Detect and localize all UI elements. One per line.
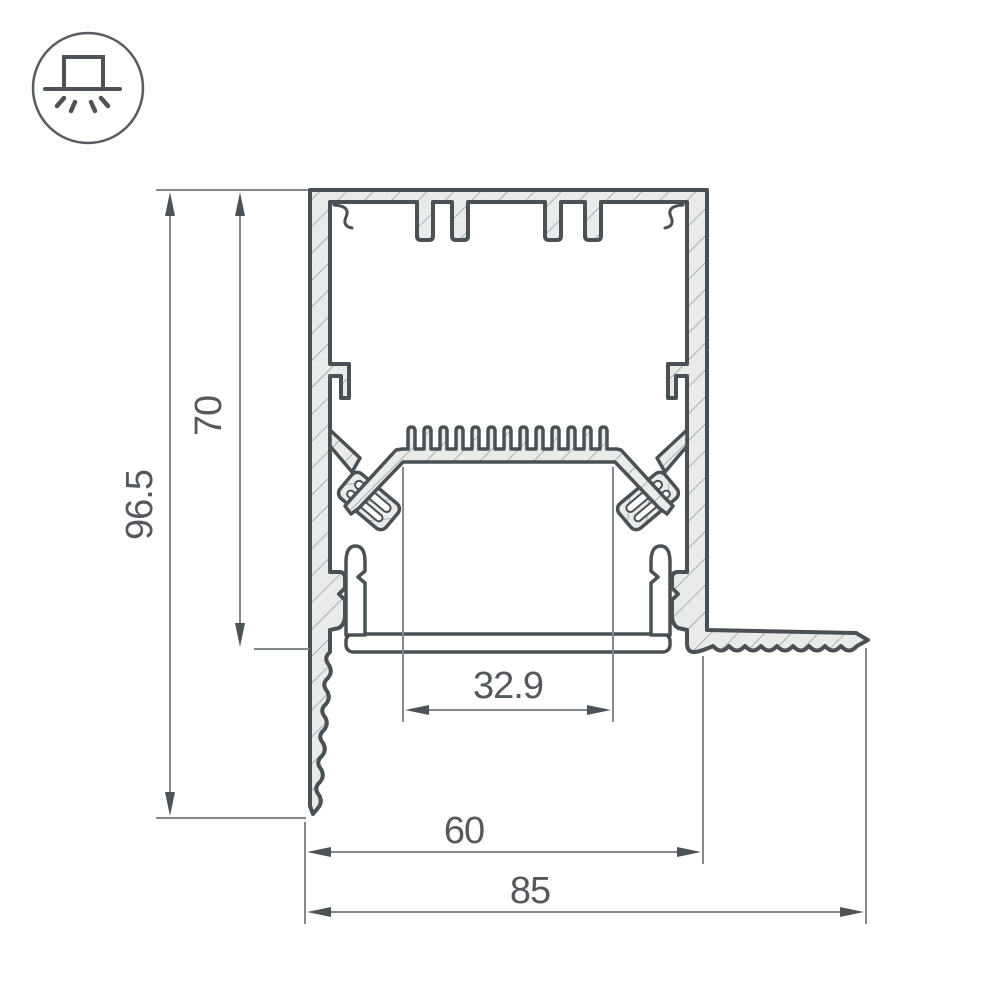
technical-drawing-page: 96.5 70 32.9 60 85 xyxy=(0,0,1000,1000)
dimension-labels: 96.5 70 32.9 60 85 xyxy=(119,396,550,912)
clip-bracket-right xyxy=(657,430,687,472)
corner-screw-ports xyxy=(334,205,683,228)
recessed-light-icon xyxy=(33,33,143,143)
dimension-lines xyxy=(156,190,866,924)
diffuser-tray-left-wall xyxy=(346,546,365,635)
dimension-arrows xyxy=(165,192,864,917)
icon-fixture-box xyxy=(64,57,103,89)
icon-light-rays xyxy=(57,98,108,111)
dim-total-height: 96.5 xyxy=(119,470,161,540)
dim-overall-width: 85 xyxy=(510,870,550,912)
dim-body-width: 60 xyxy=(444,810,484,852)
diffuser-tray-right-wall xyxy=(651,546,670,635)
profile-cross-section-drawing: 96.5 70 32.9 60 85 xyxy=(0,0,1000,1000)
diffuser-tray xyxy=(346,546,670,652)
diffuser-tray-bottom xyxy=(346,634,670,652)
dim-visible-height: 70 xyxy=(188,396,230,436)
dim-inner-width: 32.9 xyxy=(473,665,543,707)
clip-bracket-left xyxy=(330,430,360,472)
